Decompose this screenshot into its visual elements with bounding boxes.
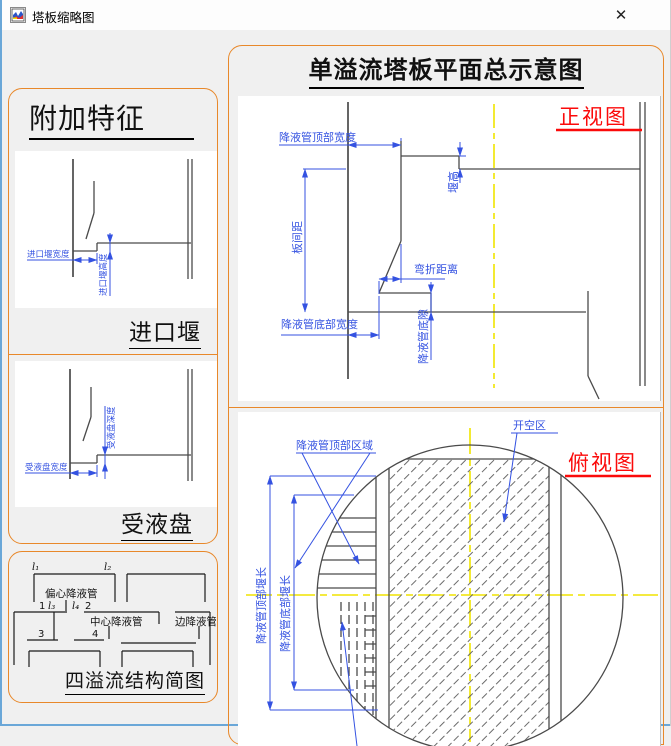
downcomer-bottom-width-label: 降液管底部宽度 <box>281 317 358 331</box>
front-view-lines <box>348 102 645 399</box>
receiving-pan-caption: 受液盘 <box>121 505 193 541</box>
center-downcomer-label: 中心降液管 <box>90 615 143 628</box>
single-pass-overview-panel: 单溢流塔板平面总示意图 降液管顶部宽度 <box>228 45 664 745</box>
inlet-weir-lines <box>73 159 192 279</box>
receiving-pan-diagram: 受液盘宽度 受液盘深度 <box>15 361 217 507</box>
additional-features-title: 附加特征 <box>29 97 194 140</box>
left-panel-divider <box>9 354 217 355</box>
weir-height-label: 堰高 <box>446 171 460 193</box>
top-view-canvas: 降液管顶部堰长 降液管底部堰长 降液管顶部区域 开空区 俯视图 <box>238 412 661 746</box>
receiving-pan-thumbnail: 受液盘宽度 受液盘深度 <box>15 361 217 507</box>
app-chart-icon <box>10 7 26 23</box>
tray-spacing-label: 板间距 <box>290 221 304 254</box>
open-area-label: 开空区 <box>513 418 546 432</box>
top-view-drawing: 降液管顶部堰长 降液管底部堰长 降液管顶部区域 开空区 俯视图 <box>238 412 660 746</box>
window-title: 塔板缩略图 <box>32 7 95 26</box>
perforated-area-hatch <box>389 459 549 746</box>
main-title-row: 单溢流塔板平面总示意图 <box>229 50 663 89</box>
downcomer-top-weir-length-label: 降液管顶部堰长 <box>254 567 268 644</box>
inlet-weir-diagram: 进口堰宽度 进口堰高度 <box>15 151 217 308</box>
pass-number-3: 3 <box>38 629 44 640</box>
tray-thumbnail-window: { "window": { "title": "塔板缩略图", "close_g… <box>0 0 671 726</box>
length-l2-label: l₂ <box>104 562 111 573</box>
eccentric-downcomer-label: 偏心降液管 <box>45 587 98 600</box>
receiving-pan-width-label: 受液盘宽度 <box>25 462 68 473</box>
length-l1-label: l₁ <box>32 562 39 573</box>
titlebar: 塔板缩略图 ✕ <box>2 0 670 30</box>
four-pass-structure-panel: l₁ l₂ 偏心降液管 1 l₃ l₄ 2 中心降液管 边降液管 3 4 四溢流… <box>8 551 218 703</box>
main-panel-divider <box>229 407 663 408</box>
length-l3-label: l₃ <box>48 601 55 612</box>
window-border-left <box>0 0 2 726</box>
four-pass-structure-title: 四溢流结构简图 <box>65 666 205 695</box>
length-l4-label: l₄ <box>72 601 79 612</box>
bend-distance-label: 弯折距离 <box>414 262 458 276</box>
inlet-weir-caption: 进口堰 <box>129 313 201 349</box>
side-downcomer-label: 边降液管 <box>175 615 216 628</box>
top-view-label: 俯视图 <box>568 451 637 475</box>
pass-number-4: 4 <box>92 629 98 640</box>
front-view-dimensions: 降液管顶部宽度 板间距 堰高 弯折距离 降液管底部宽度 <box>279 130 466 364</box>
four-pass-diagram: l₁ l₂ 偏心降液管 1 l₃ l₄ 2 中心降液管 边降液管 3 4 <box>12 556 216 668</box>
inlet-weir-height-label: 进口堰高度 <box>98 253 109 296</box>
cutoff-leader <box>342 622 357 746</box>
pass-number-2: 2 <box>85 601 91 612</box>
downcomer-bottom-weir-length-label: 降液管底部堰长 <box>278 575 292 652</box>
downcomer-bottom-clearance-label: 降液管底隙 <box>416 309 430 364</box>
main-title: 单溢流塔板平面总示意图 <box>309 50 584 89</box>
inlet-weir-width-label: 进口堰宽度 <box>27 249 70 260</box>
front-view-label: 正视图 <box>559 105 628 129</box>
receiving-pan-depth-label: 受液盘深度 <box>106 406 117 449</box>
additional-features-panel: 附加特征 进口堰宽度 进口堰高度 <box>8 88 218 544</box>
receiving-pan-lines <box>70 369 192 481</box>
downcomer-top-width-label: 降液管顶部宽度 <box>279 130 356 144</box>
downcomer-top-region-label: 降液管顶部区域 <box>296 438 373 452</box>
front-view-drawing: 降液管顶部宽度 板间距 堰高 弯折距离 降液管底部宽度 <box>238 96 660 401</box>
receiving-pan-dimensions: 受液盘宽度 受液盘深度 <box>25 406 117 479</box>
pass-number-1: 1 <box>39 601 45 612</box>
inlet-weir-thumbnail: 进口堰宽度 进口堰高度 <box>15 151 217 308</box>
front-view-canvas: 降液管顶部宽度 板间距 堰高 弯折距离 降液管底部宽度 <box>238 96 661 401</box>
close-button[interactable]: ✕ <box>608 4 634 26</box>
